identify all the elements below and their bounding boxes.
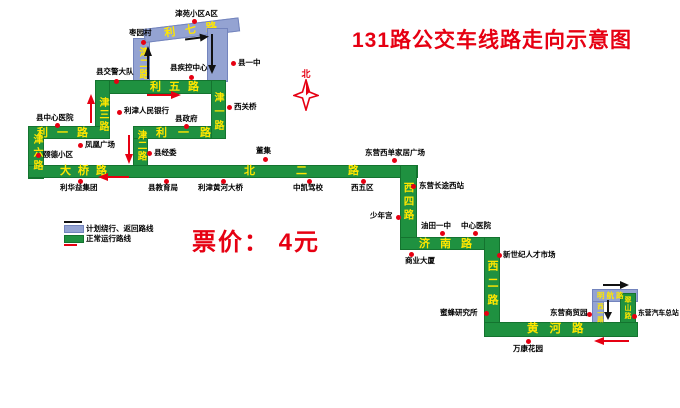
road-label-jinsan: 津三路 [97, 97, 107, 133]
road-label-liyi-west: 利一路 [37, 128, 97, 139]
bus-route-map: 131路公交车线路走向示意图 票价： 4元 北 计划绕行、返回路线 正常运行路线… [0, 0, 680, 408]
stop-label: 津苑小区A区 [175, 10, 218, 18]
stop-label: 县教育局 [148, 184, 178, 192]
stop-label: 县经委 [154, 149, 177, 157]
stop-dot [411, 184, 416, 189]
stop-dot [231, 61, 236, 66]
stop-dot [396, 215, 401, 220]
stop-label: 蜜蜂研究所 [440, 309, 478, 317]
stop-dot [184, 124, 189, 129]
road-label-xiyi: 西一路 [595, 303, 602, 323]
route-arrow-left-huanghe [594, 336, 630, 346]
road-label-huanghe: 黄河路 [527, 324, 595, 336]
stop-label: 县一中 [238, 59, 261, 67]
stop-dot [192, 19, 197, 24]
stop-label: 东营商贸园 [550, 309, 588, 317]
stop-label: 东营汽车总站 [638, 311, 679, 318]
detour-arrow-down-loop [604, 299, 613, 321]
compass-star-icon [293, 79, 319, 111]
legend-normal-swatch [64, 235, 84, 243]
road-label-xier: 西二路 [486, 260, 497, 311]
stop-label: 县交警大队 [96, 68, 134, 76]
stop-dot [473, 231, 478, 236]
stop-label: 利华益集团 [60, 184, 98, 192]
stop-dot [440, 231, 445, 236]
legend-black-arrow-sample [64, 221, 82, 223]
road-label-jinyi: 津一路 [212, 92, 222, 134]
stop-label: 利津人民银行 [124, 107, 169, 115]
legend-detour-label: 计划绕行、返回路线 [86, 225, 154, 233]
stop-dot [263, 157, 268, 162]
stop-dot [189, 75, 194, 80]
road-label-jinan: 济南路 [419, 239, 482, 250]
stop-dot [78, 143, 83, 148]
stop-label: 董集 [256, 147, 271, 155]
legend-red-arrow-sample [64, 244, 77, 246]
stop-label: 少年宫 [370, 212, 393, 220]
stop-label: 颐德小区 [43, 151, 73, 159]
fare-text: 票价： 4元 [192, 222, 320, 257]
stop-dot [36, 153, 41, 158]
north-compass: 北 [292, 70, 320, 116]
route-arrow-right-liwu [146, 90, 182, 100]
stop-label: 万康花园 [513, 345, 543, 353]
stop-dot [632, 314, 637, 319]
detour-arrow-right-minghang [602, 281, 630, 290]
stop-label: 中凯驾校 [293, 184, 323, 192]
road-label-beier: 北二路 [244, 166, 400, 177]
stop-label: 凤凰广场 [85, 141, 115, 149]
route-arrow-left-daqiao [98, 172, 130, 182]
stop-label: 油田一中 [421, 222, 451, 230]
stop-label: 枣园村 [129, 29, 152, 37]
stop-dot [117, 110, 122, 115]
north-label: 北 [292, 70, 320, 79]
detour-arrow-up-jiner-north [143, 46, 153, 80]
stop-dot [55, 123, 60, 128]
stop-label: 新世纪人才市场 [503, 251, 556, 259]
route-arrow-up-jinsan [86, 94, 96, 124]
stop-label: 东营西单家居广场 [365, 149, 425, 157]
route-arrow-down-jiner [124, 134, 134, 164]
stop-dot [141, 40, 146, 45]
stop-dot [392, 158, 397, 163]
stop-label: 县中心医院 [36, 114, 74, 122]
detour-arrow-down-descender [207, 33, 217, 75]
stop-dot [147, 151, 152, 156]
legend-normal-label: 正常运行路线 [86, 235, 131, 243]
stop-label: 商业大厦 [405, 257, 435, 265]
stop-dot [484, 311, 489, 316]
map-title: 131路公交车线路走向示意图 [352, 24, 632, 54]
stop-dot [114, 79, 119, 84]
stop-label: 东营长途西站 [419, 182, 464, 190]
legend-detour-swatch [64, 225, 84, 233]
road-label-jiner-south: 津二路 [136, 130, 146, 162]
stop-label: 县疾控中心 [170, 64, 208, 72]
stop-label: 西五区 [351, 184, 374, 192]
stop-dot [227, 105, 232, 110]
stop-label: 中心医院 [461, 222, 491, 230]
stop-label: 利津黄河大桥 [198, 184, 243, 192]
stop-dot [497, 253, 502, 258]
stop-label: 西关桥 [234, 103, 257, 111]
stop-label: 县政府 [175, 115, 198, 123]
